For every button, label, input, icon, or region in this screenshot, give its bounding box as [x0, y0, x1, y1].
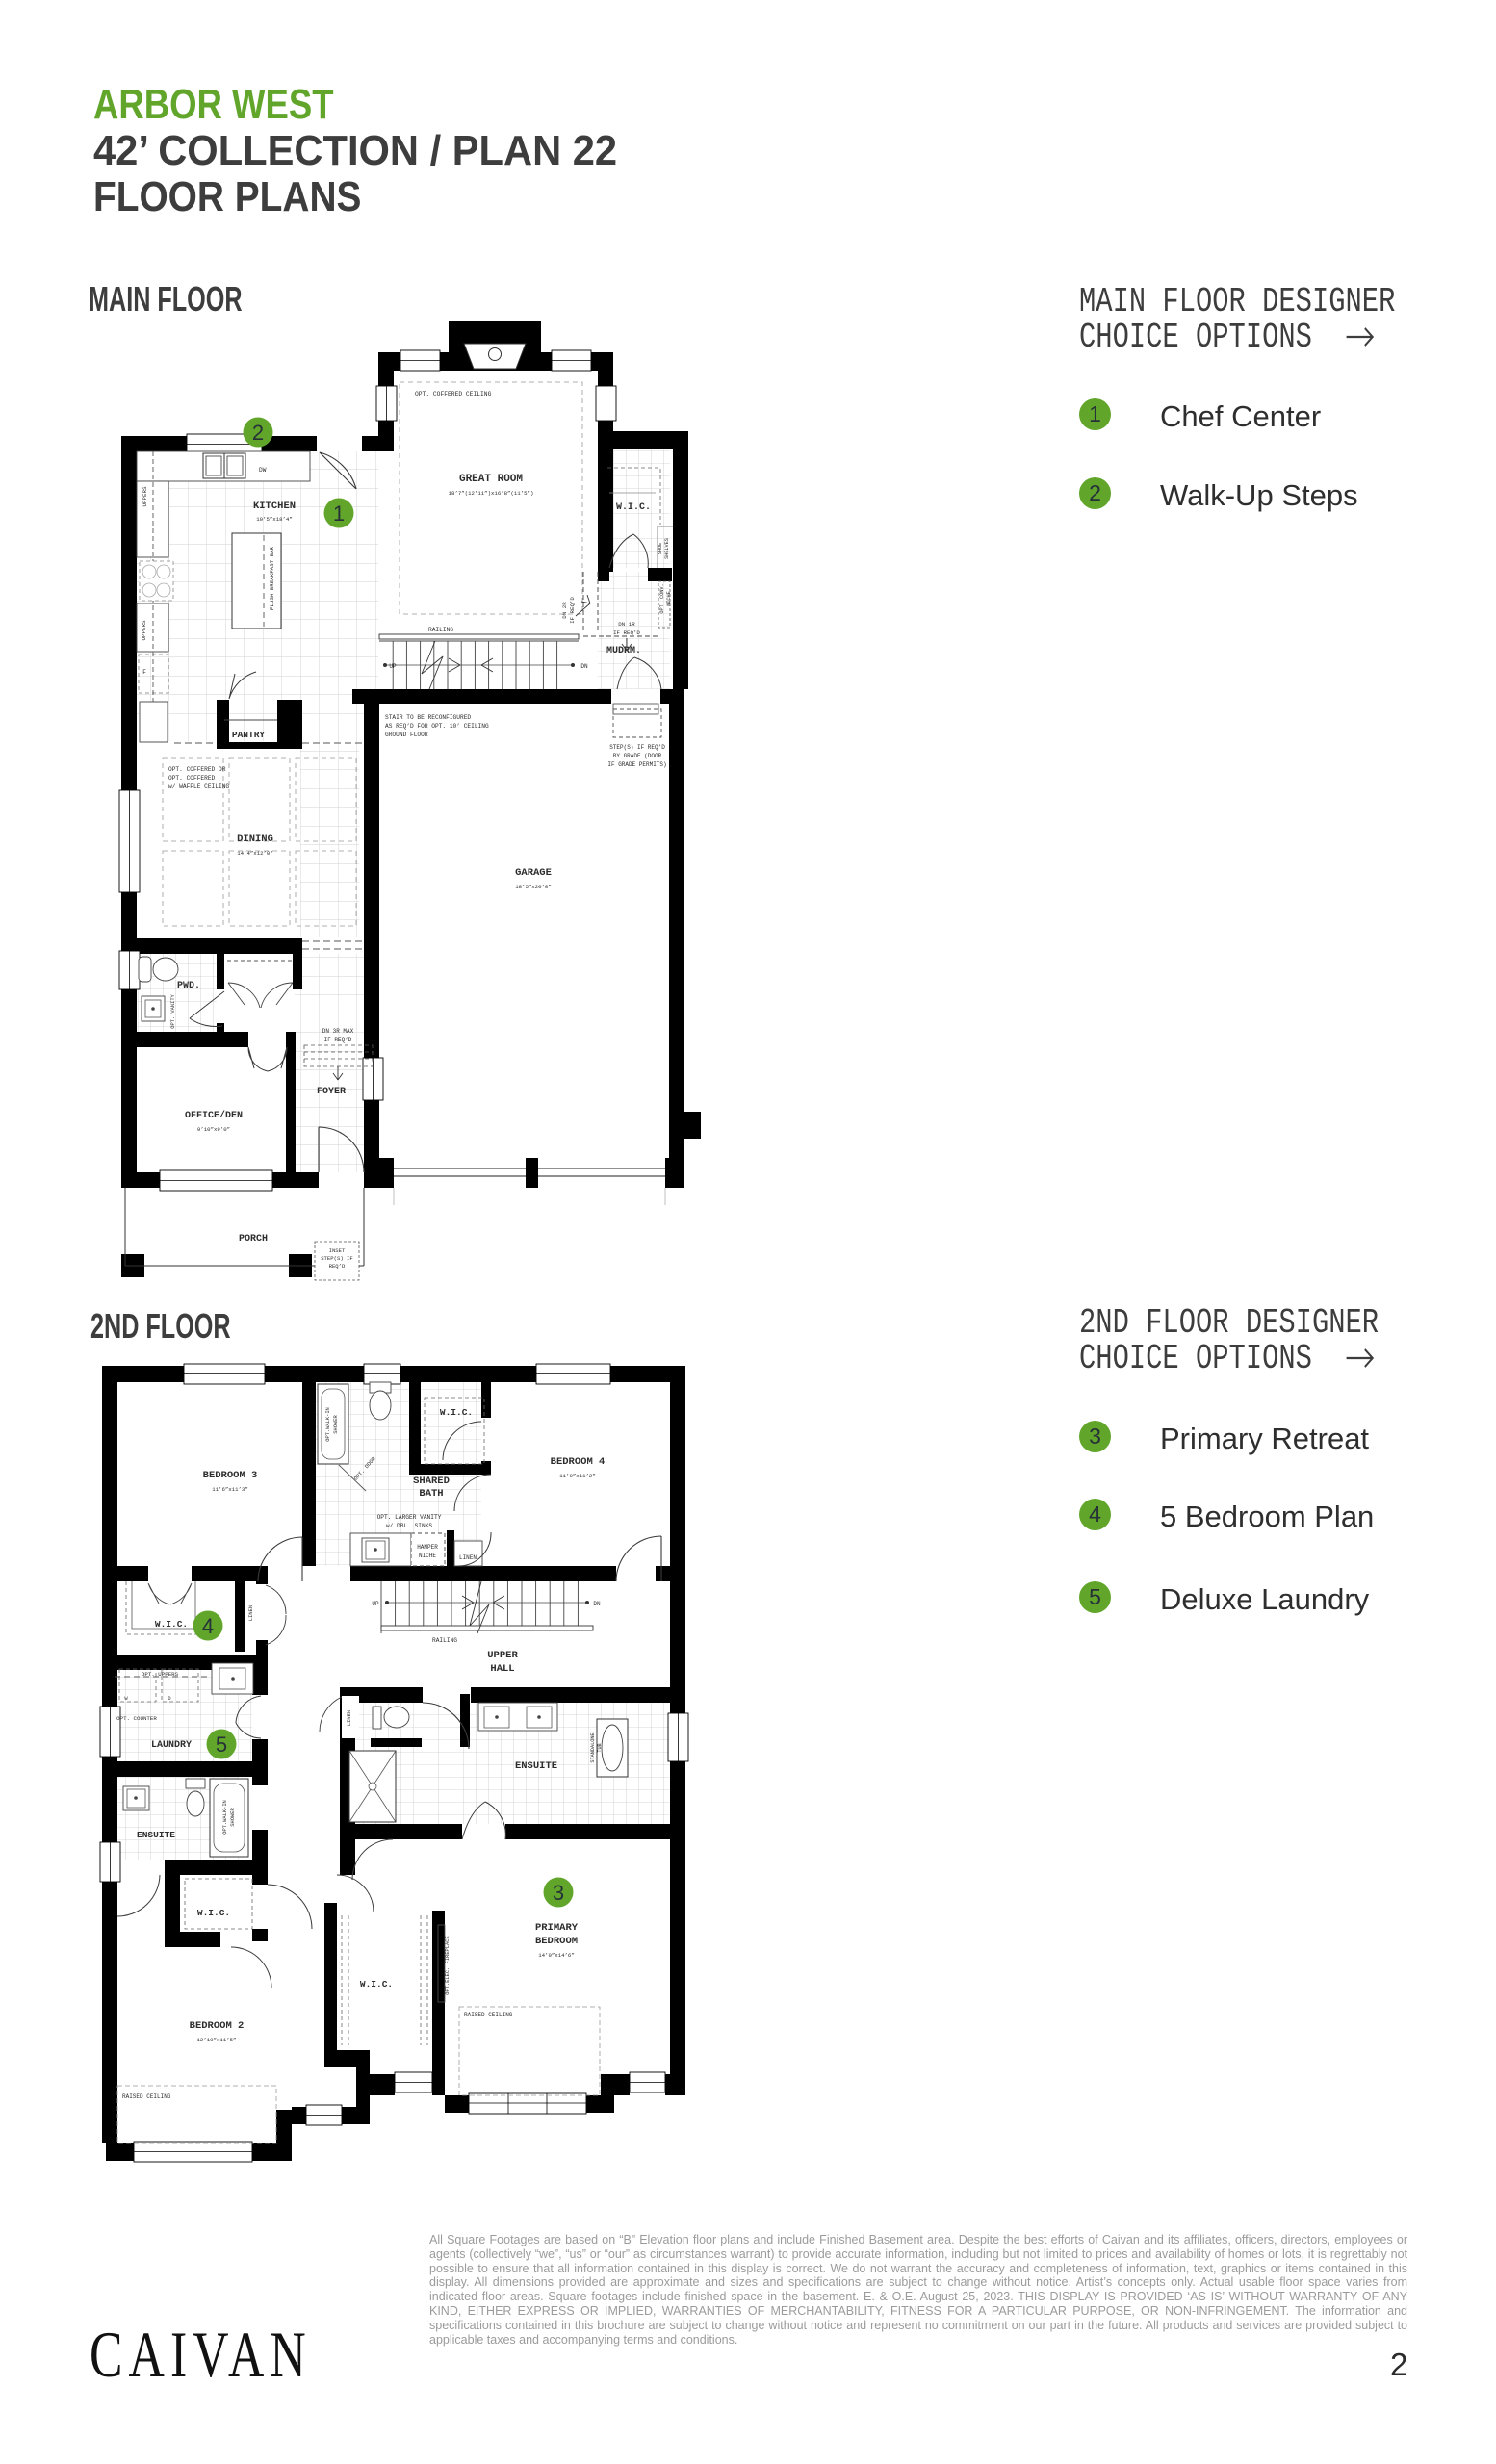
svg-text:DN: DN	[580, 663, 588, 670]
svg-text:RAISED CEILING: RAISED CEILING	[122, 2093, 171, 2100]
svg-text:11’6”x11’3”: 11’6”x11’3”	[212, 1486, 248, 1493]
svg-text:OPT. CONV.: OPT. CONV.	[659, 583, 665, 613]
svg-text:UPPER: UPPER	[487, 1650, 518, 1661]
svg-text:LINEN: LINEN	[459, 1554, 477, 1561]
svg-text:RAISED CEILING: RAISED CEILING	[464, 2012, 513, 2018]
svg-text:OPT. COUNTER: OPT. COUNTER	[116, 1715, 157, 1722]
svg-text:IF GRADE PERMITS): IF GRADE PERMITS)	[607, 761, 666, 768]
svg-text:OPT. COFFERED CEILING: OPT. COFFERED CEILING	[415, 391, 492, 398]
svg-text:GARAGE: GARAGE	[515, 867, 552, 879]
svg-text:W.I.C.: W.I.C.	[155, 1619, 188, 1630]
svg-text:BEDROOM 3: BEDROOM 3	[203, 1470, 258, 1481]
svg-text:IF REQ’D: IF REQ’D	[569, 597, 576, 624]
svg-text:3: 3	[553, 1881, 564, 1905]
svg-text:BY GRADE (DOOR: BY GRADE (DOOR	[613, 753, 662, 759]
svg-text:14’4”x12’0”: 14’4”x12’0”	[237, 850, 273, 857]
svg-text:PWD.: PWD.	[177, 981, 200, 991]
svg-text:W.I.C.: W.I.C.	[197, 1908, 230, 1918]
svg-text:OPT. COFFERED: OPT. COFFERED	[168, 775, 216, 782]
svg-text:W.I.C.: W.I.C.	[440, 1407, 473, 1418]
svg-text:BEDROOM: BEDROOM	[535, 1936, 578, 1947]
svg-text:STEP(S) IF: STEP(S) IF	[321, 1255, 353, 1262]
svg-text:REQ’D: REQ’D	[329, 1263, 346, 1270]
svg-text:w/ DBL. SINKS: w/ DBL. SINKS	[386, 1523, 433, 1529]
svg-text:OPT.WALK-IN: OPT.WALK-IN	[222, 1800, 228, 1835]
svg-text:ENSUITE: ENSUITE	[515, 1760, 557, 1772]
svg-text:SHOWER: SHOWER	[230, 1808, 236, 1827]
svg-text:SHARED: SHARED	[413, 1476, 450, 1487]
svg-text:STANDALONE: STANDALONE	[590, 1732, 596, 1762]
svg-text:w/ WAFFLE CEILING: w/ WAFFLE CEILING	[168, 783, 229, 790]
svg-text:DN: DN	[593, 1601, 601, 1607]
svg-text:GROUND FLOOR: GROUND FLOOR	[385, 731, 428, 738]
svg-text:RAILING: RAILING	[428, 627, 453, 633]
svg-text:11’0”x11’2”: 11’0”x11’2”	[559, 1473, 596, 1479]
svg-text:GREAT ROOM: GREAT ROOM	[459, 474, 523, 485]
svg-text:HALL: HALL	[490, 1663, 514, 1675]
svg-text:LINEN: LINEN	[248, 1605, 254, 1621]
svg-text:LINEN: LINEN	[347, 1710, 352, 1726]
svg-text:RAILING: RAILING	[432, 1637, 457, 1644]
svg-text:MUDRM.: MUDRM.	[606, 646, 641, 656]
svg-text:DN 1R: DN 1R	[618, 621, 635, 628]
svg-text:STAIR TO BE RECONFIGURED: STAIR TO BE RECONFIGURED	[385, 714, 471, 721]
svg-text:UPPERS: UPPERS	[142, 486, 148, 506]
svg-text:10’5”x18’4”: 10’5”x18’4”	[256, 516, 293, 523]
svg-text:NICHE: NICHE	[419, 1553, 436, 1559]
svg-text:DW: DW	[259, 467, 267, 474]
svg-text:FOYER: FOYER	[317, 1087, 346, 1097]
svg-text:D: D	[168, 1696, 170, 1702]
svg-text:2: 2	[252, 421, 264, 445]
svg-text:NICHE: NICHE	[666, 591, 672, 606]
svg-text:18’5”x20’0”: 18’5”x20’0”	[515, 884, 552, 890]
svg-text:FLUSH BREAKFAST BAR: FLUSH BREAKFAST BAR	[269, 546, 275, 610]
svg-text:W.I.C.: W.I.C.	[360, 1979, 393, 1989]
svg-text:OFFICE/DEN: OFFICE/DEN	[185, 1110, 243, 1121]
svg-text:F: F	[142, 669, 146, 676]
svg-text:TUB: TUB	[597, 1743, 603, 1752]
svg-text:12’10”x11’5”: 12’10”x11’5”	[197, 2037, 237, 2043]
svg-text:18’7”(12’11”)x16’8”(11’5”): 18’7”(12’11”)x16’8”(11’5”)	[449, 490, 534, 497]
svg-text:KITCHEN: KITCHEN	[253, 500, 296, 512]
svg-text:1: 1	[333, 501, 345, 526]
svg-text:HAMPER: HAMPER	[417, 1544, 438, 1551]
svg-text:BEDROOM 2: BEDROOM 2	[190, 2020, 245, 2032]
svg-text:IF REQ’D: IF REQ’D	[613, 629, 640, 636]
svg-text:ENSUITE: ENSUITE	[137, 1830, 175, 1840]
svg-text:4: 4	[202, 1614, 214, 1638]
svg-text:SHOE: SHOE	[658, 543, 663, 554]
svg-text:PRIMARY: PRIMARY	[535, 1922, 579, 1934]
svg-text:PORCH: PORCH	[239, 1234, 268, 1245]
svg-text:BEDROOM 4: BEDROOM 4	[551, 1456, 606, 1468]
svg-text:DN 2R: DN 2R	[561, 602, 568, 619]
svg-text:INSET: INSET	[329, 1247, 346, 1254]
svg-text:OPT.WALK-IN: OPT.WALK-IN	[325, 1407, 331, 1442]
svg-text:IF REQ’D: IF REQ’D	[324, 1037, 352, 1043]
svg-text:SHOWER: SHOWER	[333, 1415, 339, 1434]
svg-text:9’10”x9’0”: 9’10”x9’0”	[197, 1126, 230, 1133]
svg-text:UP: UP	[389, 663, 397, 670]
svg-text:14’0”x14’6”: 14’0”x14’6”	[538, 1952, 575, 1959]
svg-text:BATH: BATH	[419, 1488, 443, 1500]
svg-text:STEP(S) IF REQ’D: STEP(S) IF REQ’D	[609, 744, 665, 751]
svg-text:UPPERS: UPPERS	[141, 620, 147, 640]
svg-text:OPT. LARGER VANITY: OPT. LARGER VANITY	[377, 1514, 442, 1521]
svg-text:OPT. VANITY: OPT. VANITY	[170, 993, 176, 1028]
svg-text:DINING: DINING	[237, 834, 273, 845]
svg-text:SHELVES: SHELVES	[664, 538, 670, 559]
svg-text:LAUNDRY: LAUNDRY	[151, 1740, 192, 1751]
svg-text:DN 3R MAX: DN 3R MAX	[322, 1028, 354, 1035]
svg-text:W.I.C.: W.I.C.	[616, 502, 651, 513]
svg-text:UP: UP	[372, 1601, 379, 1607]
svg-text:AS REQ’D FOR OPT. 10’ CEILING: AS REQ’D FOR OPT. 10’ CEILING	[385, 723, 489, 730]
svg-text:OPT. COFFERED OR: OPT. COFFERED OR	[168, 766, 226, 773]
svg-text:5: 5	[216, 1732, 227, 1757]
svg-text:PANTRY: PANTRY	[232, 730, 266, 740]
svg-text:OPT.ELEC. FIREPLACE: OPT.ELEC. FIREPLACE	[445, 1936, 451, 1994]
